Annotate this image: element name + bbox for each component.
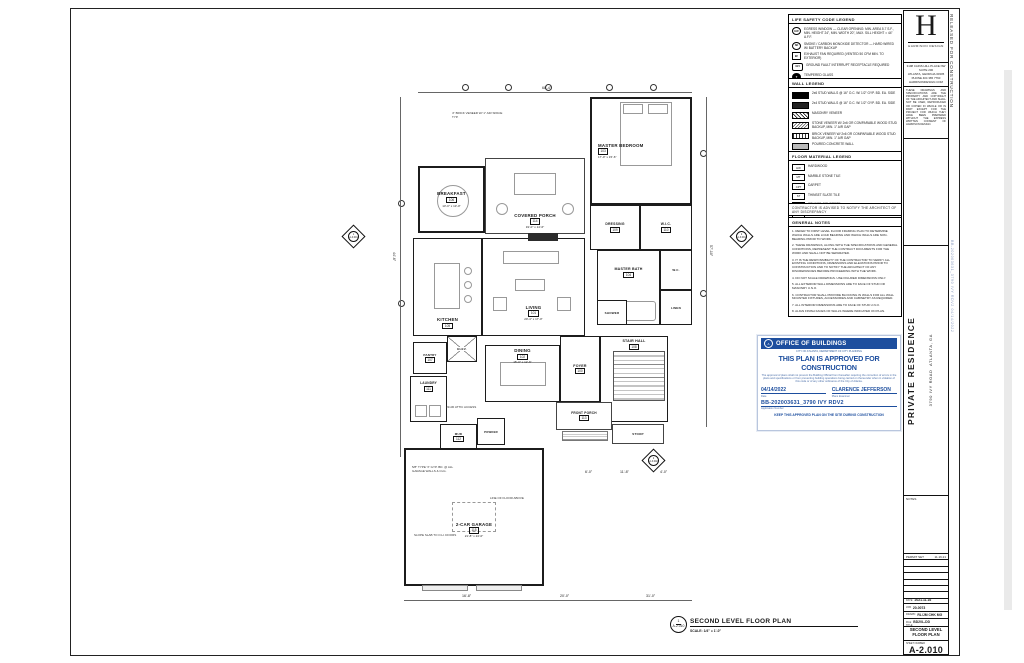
wall-swatch	[792, 112, 809, 119]
general-notes: GENERAL NOTES 1. REFER TO FIRST LEVEL FL…	[788, 217, 902, 317]
breakfast-table	[437, 185, 469, 217]
stamp-subheader: CITY OF ATLANTA, DEPARTMENT OF CITY PLAN…	[761, 350, 897, 353]
dim-label: 44'-6"	[392, 252, 396, 261]
room-linen: LINEN	[660, 290, 692, 325]
room-elevator: ELEV.	[447, 336, 477, 362]
legend-item: BRICK VENEER W/ 2x6 OR COMPARABLE WOOD S…	[792, 132, 898, 140]
fireplace	[528, 233, 558, 241]
room-front-porch: FRONT PORCH113	[556, 402, 612, 430]
room-dressing: DRESSING109	[590, 205, 640, 250]
legend-item: CPTCARPET	[792, 183, 898, 190]
released-for-construction-text: RELEASED FOR CONSTRUCTION	[949, 14, 954, 108]
sheet-number: A-2.010	[904, 645, 948, 655]
window-tag	[650, 84, 657, 91]
legend-item: EWEGRESS WINDOW — CLEAR OPENING: MIN. AR…	[792, 27, 898, 39]
field-row: DATE2021.11.16	[904, 597, 948, 604]
room-breakfast: BREAKFAST10613'-0" x 13'-0"	[418, 166, 485, 233]
stamp-header: A OFFICE OF BUILDINGS	[761, 338, 897, 349]
coffee-table	[515, 279, 545, 291]
general-note: 2. THESE DRAWINGS, ALONG WITH THE SPECIF…	[792, 244, 898, 256]
legend-item: STTHINSET SLATE TILE	[792, 193, 898, 200]
legend-title: GENERAL NOTES	[788, 217, 902, 227]
general-note: 6. CONTRACTOR SHALL PROVIDE BLOCKING IN …	[792, 294, 898, 302]
bathtub	[622, 301, 656, 321]
firm-logo: H HARRISON DESIGN	[904, 11, 948, 63]
legend-item: MASONRY VENEER	[792, 111, 898, 119]
general-note: 1. REFER TO FIRST LEVEL FLOOR FRAMING PL…	[792, 230, 898, 242]
life-safety-legend: LIFE SAFETY CODE LEGEND EWEGRESS WINDOW …	[788, 14, 902, 87]
approval-stamp: A OFFICE OF BUILDINGS CITY OF ATLANTA, D…	[757, 335, 901, 431]
stamp-footer: KEEP THIS APPROVED PLAN ON THE SITE DURI…	[761, 413, 897, 417]
bed-pillow	[623, 104, 643, 114]
legend-title: WALL LEGEND	[788, 78, 902, 88]
sheet-number-box: SHEET NUMBER A-2.010	[904, 641, 948, 654]
legend-item: GFIGROUND FAULT INTERRUPT RECEPTACLE REQ…	[792, 63, 898, 71]
titleblock-spacer	[904, 139, 948, 246]
stamp-examiner: CLARENCE JEFFERSON Plans Examiner	[832, 387, 897, 398]
dimension-line	[400, 97, 401, 457]
digital-stamp-sidetext: BB-202003631_3790 IVY RDV2 04/14/2022	[950, 240, 954, 332]
armchair	[557, 297, 571, 311]
porch-steps	[562, 431, 608, 441]
stamp-date: 04/14/2022 Date	[761, 387, 826, 398]
notes-box: NOTES	[904, 496, 948, 554]
harrison-h-logo: H	[904, 11, 948, 41]
washer	[415, 405, 427, 417]
room-laundry: LAUNDRY111	[410, 376, 447, 422]
stamp-org: OFFICE OF BUILDINGS	[776, 341, 846, 347]
drawing-sheet-scan: LIFE SAFETY CODE LEGEND EWEGRESS WINDOW …	[0, 0, 1024, 663]
stamp-paragraph: The approval of plans shall not prevent …	[761, 374, 897, 384]
field-row: JOB20-0073	[904, 604, 948, 611]
sheet-title: SECOND LEVEL FLOOR PLAN	[904, 627, 948, 638]
general-note: 3. IT IS THE RESPONSIBILITY OF THE CONTR…	[792, 259, 898, 275]
room-pantry: PANTRY107	[413, 342, 447, 374]
plan-annotation: LINE OF FLOOR ABOVE	[490, 497, 524, 501]
wall-swatch	[792, 133, 809, 140]
dim-label: 4'-0"	[660, 470, 667, 474]
plan-annotation: 5/8" TYPE 'X' GYP. BD. @ ALL GARAGE WALL…	[412, 466, 464, 473]
room-stoop: STOOP	[612, 424, 664, 444]
room-mud: MUD112	[440, 424, 477, 450]
legend-title: FLOOR MATERIAL LEGEND	[788, 151, 902, 161]
wall-swatch	[792, 102, 809, 109]
sheet-title-box: TITLE SECOND LEVEL FLOOR PLAN	[904, 623, 948, 641]
dimension-line	[706, 97, 707, 427]
general-note: 4. DO NOT SCALE DRAWINGS. USE FIGURED DI…	[792, 277, 898, 281]
note-strip: CONTRACTOR IS ADVISED TO NOTIFY THE ARCH…	[788, 203, 902, 216]
dim-label: 57'-10"	[709, 245, 713, 256]
legend-item: EFEXHAUST FAN REQUIRED (VENTED 50 CFM MI…	[792, 52, 898, 60]
legend-item: HWHARDWOOD	[792, 164, 898, 171]
dryer	[429, 405, 441, 417]
porch-table	[514, 173, 556, 195]
plan-title: SECOND LEVEL FLOOR PLAN	[690, 618, 858, 627]
porch-chair	[496, 203, 508, 215]
dining-table	[500, 362, 546, 386]
stairs	[613, 351, 665, 401]
legend-item: STONE VENEER W/ 2x6 OR COMPARABLE WOOD S…	[792, 121, 898, 129]
kitchen-island	[434, 263, 460, 309]
general-note: 7. ALL INTERIOR DIMENSIONS ARE TO FACE O…	[792, 304, 898, 308]
dim-label: 6'-0"	[585, 470, 592, 474]
wall-swatch	[792, 143, 809, 150]
smoke-detector-icon: SD	[792, 42, 801, 50]
stool	[464, 281, 472, 289]
scan-artifact	[1004, 70, 1012, 610]
stool	[464, 267, 472, 275]
wall-swatch	[792, 122, 809, 129]
gfi-icon: GFI	[792, 63, 803, 71]
armchair	[493, 297, 507, 311]
room-powder: POWDER	[477, 418, 505, 445]
room-wc: W.C.	[660, 250, 692, 290]
general-note: 5. ALL EXTERIOR WALL DIMENSIONS ARE TO F…	[792, 283, 898, 291]
room-master-bedroom: MASTER BEDROOM 103 17'-0" x 15'-6"	[590, 97, 692, 205]
exhaust-fan-icon: EF	[792, 52, 801, 60]
copyright-note: THESE DRAWINGS AND SPECIFICATIONS ARE TH…	[904, 87, 948, 139]
garage-door	[476, 585, 522, 591]
room-foyer: FOYER100	[560, 336, 600, 402]
dim-label: 20'-0"	[560, 594, 569, 598]
garage-door	[422, 585, 468, 591]
room-kitchen: KITCHEN105	[413, 238, 482, 336]
dim-label: 68'-4"	[542, 86, 551, 90]
wall-swatch	[792, 92, 809, 99]
legend-item: 2x6 STUD WALLS @ 16" O.C. W/ 1/2" GYP. B…	[792, 91, 898, 99]
room-dining: DINING10215'-0" x 12'-6"	[485, 345, 560, 402]
legend-item: POURED CONCRETE WALL	[792, 142, 898, 150]
plan-title-bubble: 1 A-2.010	[670, 616, 687, 633]
legend-item: SDSMOKE / CARBON MONOXIDE DETECTOR — HAR…	[792, 42, 898, 50]
dimension-line	[404, 600, 692, 601]
dim-label: 11'-8"	[620, 470, 629, 474]
legend-title: LIFE SAFETY CODE LEGEND	[788, 14, 902, 24]
dimension-line	[418, 92, 692, 93]
sofa	[503, 251, 559, 264]
stamp-title: THIS PLAN IS APPROVED FOR CONSTRUCTION	[761, 354, 897, 372]
room-living: LIVING10120'-4" x 17'-0"	[482, 238, 585, 336]
porch-chair	[562, 203, 574, 215]
legend-item: MTMARBLE STONE TILE	[792, 174, 898, 181]
dim-label: 16'-8"	[462, 594, 471, 598]
city-seal-icon: A	[764, 339, 773, 348]
plan-annotation: SLOPE SLAB TO O.H. DOORS	[414, 534, 456, 538]
legend-item: 2x4 STUD WALLS @ 16" O.C. W/ 1/2" GYP. B…	[792, 101, 898, 109]
garage-storage-outline	[452, 502, 496, 532]
bed-pillow	[648, 104, 668, 114]
room-covered-porch: COVERED PORCH11419'-0" x 14'-6"	[485, 158, 585, 234]
title-block: H HARRISON DESIGN 3198 CAINS HILL PLACE …	[903, 10, 949, 655]
window-tag	[462, 84, 469, 91]
window-tag	[606, 84, 613, 91]
plan-annotation: 22x30 ATTIC ACCESS	[446, 406, 476, 410]
dim-label: 31'-0"	[646, 594, 655, 598]
room-wic: W.I.C.110	[640, 205, 692, 250]
window-tag	[505, 84, 512, 91]
project-address: 3790 IVY ROAD ATLANTA, GA	[928, 334, 934, 406]
project-id: PRIVATE RESIDENCE 3790 IVY ROAD ATLANTA,…	[904, 246, 948, 496]
field-row: DRAWNRL/JM CHK MG	[904, 612, 948, 619]
general-note: 8. ALIGN FINISH FACES OF WALLS WHERE IND…	[792, 310, 898, 314]
room-shower: SHOWER	[597, 300, 627, 325]
plan-scale: SCALE: 1/4" = 1'-0"	[690, 629, 721, 633]
plan-annotation: 4" BRICK VENEER W/ 1" AIR SPACE TYP.	[452, 112, 504, 119]
egress-window-icon: EW	[792, 27, 801, 35]
firm-address: 3198 CAINS HILL PLACE NW SUITE 200 ATLAN…	[904, 63, 948, 87]
sheet-fields: DATE2021.11.16 JOB20-0073 DRAWNRL/JM CHK…	[904, 597, 948, 623]
stamp-permit: BB-202003631_3790 IVY RDV2 Application N…	[761, 400, 897, 410]
stool	[464, 295, 472, 303]
project-name: PRIVATE RESIDENCE	[906, 317, 916, 425]
revision-table: PERMIT SET 11.16.21	[904, 554, 948, 597]
